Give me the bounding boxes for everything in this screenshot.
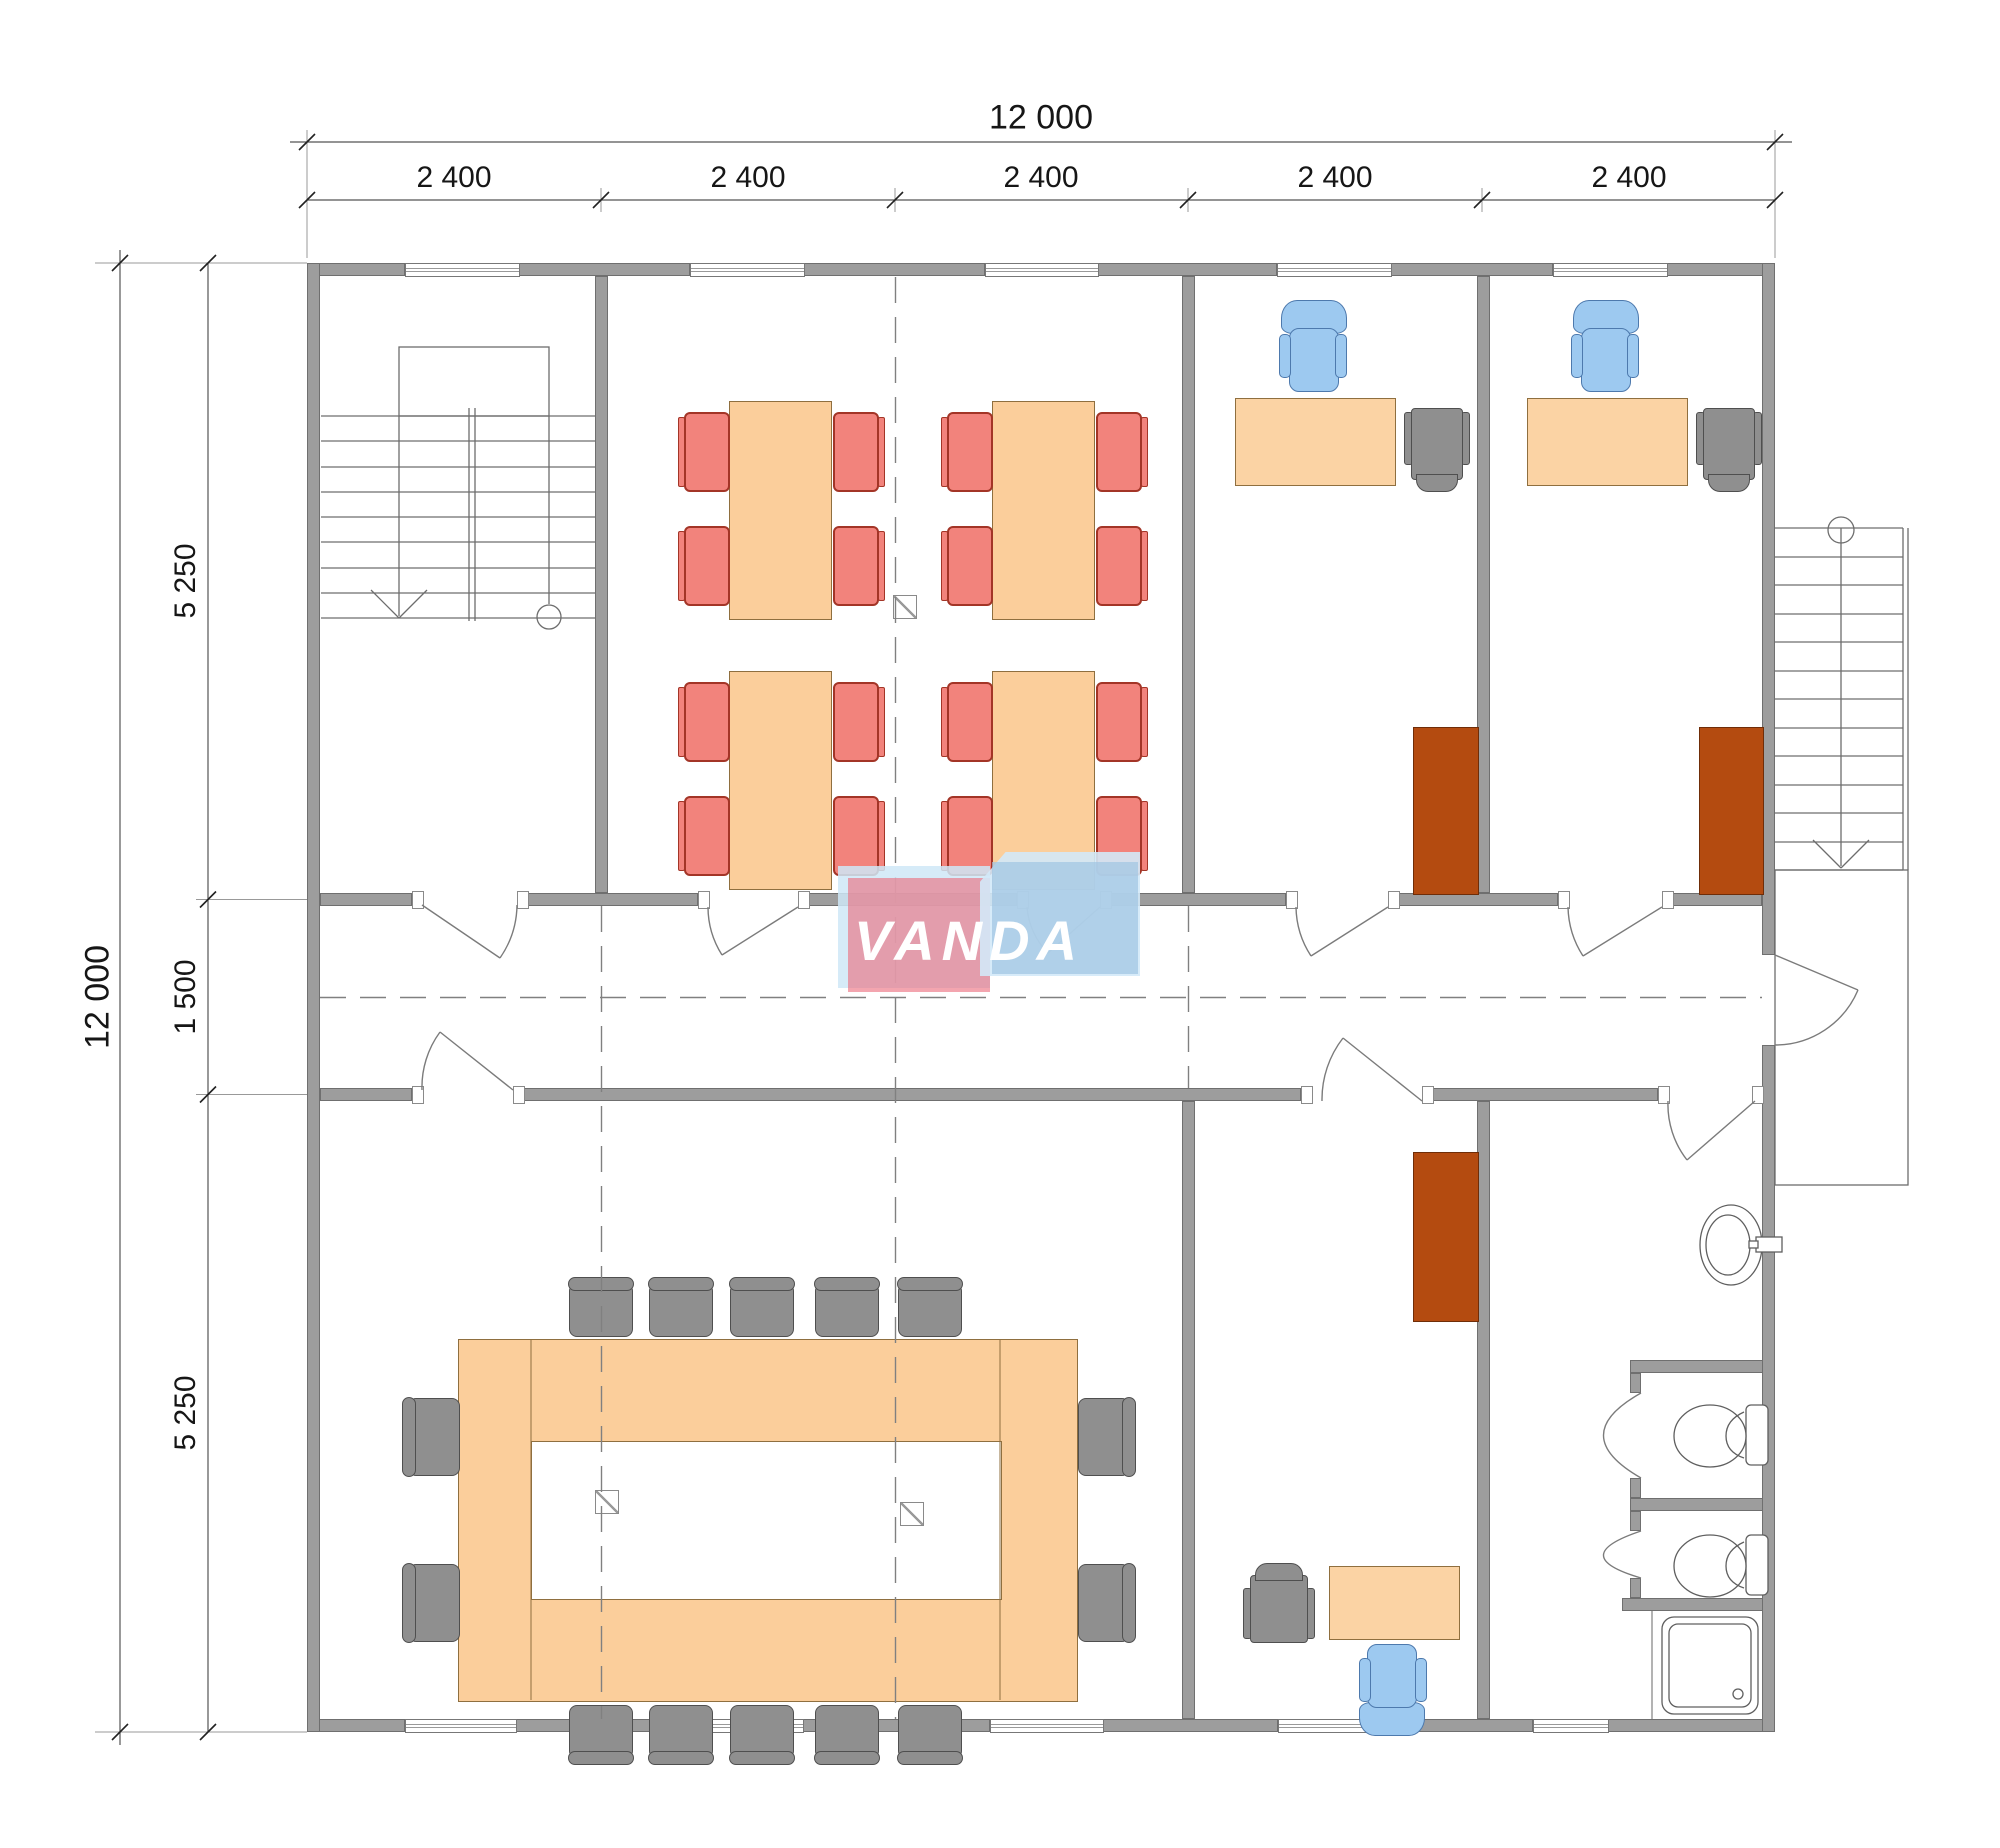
door-staircase [422,905,517,958]
sanitary [1652,1205,1782,1719]
interior-staircase [321,347,595,629]
toilet-icon [1674,1405,1768,1467]
door-wc-stall-2 [1604,1531,1642,1578]
door-classroom-1 [708,907,798,955]
door-office1 [1296,907,1388,956]
door-meeting-room [422,1032,513,1090]
dim-label-segment: 2 400 [710,161,785,195]
dim-label-segment: 2 400 [1003,161,1078,195]
exterior-landing [1775,870,1908,1185]
door-office2 [1568,907,1662,956]
dim-label-total-height: 12 000 [79,945,118,1049]
grid-dashed-lines [320,277,1762,1719]
dim-label-segment: 1 500 [169,959,203,1034]
sink-icon [1700,1205,1782,1285]
floor-plan-canvas: 12 000 2 400 2 400 2 400 2 400 2 400 12 … [0,0,2000,1848]
stair-down-arrow [1813,528,1869,868]
exterior-staircase [1775,517,1908,1185]
vanda-logo: VANDA [838,852,1142,998]
dim-label-segment: 5 250 [169,1375,203,1450]
door-swings [422,905,1858,1578]
logo-text: VANDA [854,908,1084,973]
door-wc-lobby [1668,1101,1755,1160]
dim-label-segment: 2 400 [416,161,491,195]
toilet-icon [1674,1535,1768,1597]
dim-label-segment: 2 400 [1591,161,1666,195]
dim-label-total-width: 12 000 [989,99,1093,138]
shower-tray-icon [1652,1611,1758,1719]
door-corridor-exit [1775,955,1858,1045]
dim-label-segment: 5 250 [169,543,203,618]
door-wc-stall-1 [1604,1393,1642,1478]
dim-label-segment: 2 400 [1297,161,1372,195]
door-office3 [1322,1038,1422,1101]
